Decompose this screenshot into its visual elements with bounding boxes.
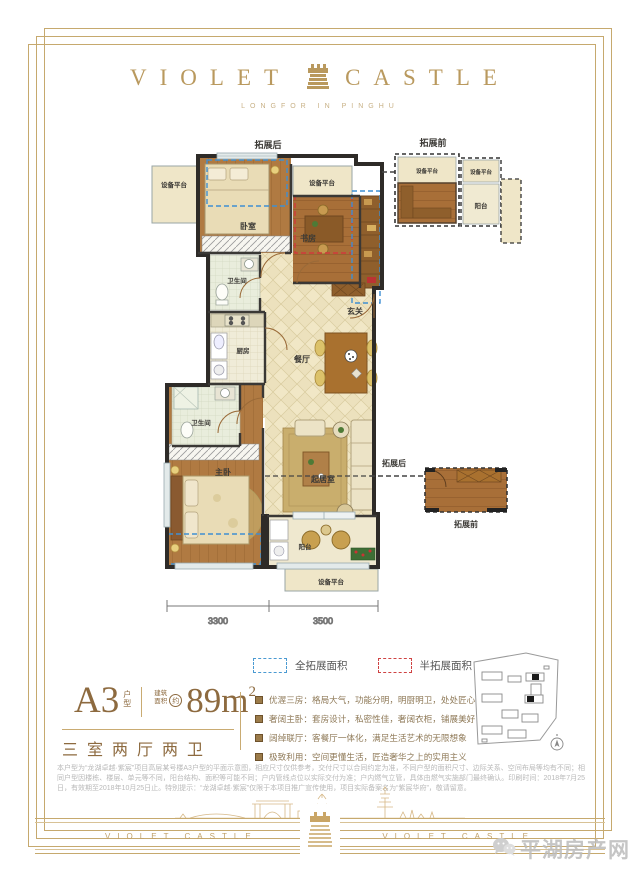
legend-half-swatch bbox=[378, 658, 412, 673]
svg-text:拓展前: 拓展前 bbox=[419, 137, 446, 148]
legend-half-label: 半拓展面积 bbox=[420, 658, 473, 673]
floor-plan: 设备平台 卧室 设备平台 bbox=[145, 128, 535, 640]
armchair bbox=[295, 420, 325, 436]
brand-title-right: CASTLE bbox=[345, 65, 510, 91]
dim-right: 3500 bbox=[313, 616, 333, 626]
room-equipment-mid: 设备平台 bbox=[293, 166, 352, 196]
svg-text:设备平台: 设备平台 bbox=[318, 577, 345, 586]
room-study: 书房 bbox=[293, 196, 360, 283]
svg-text:阳台: 阳台 bbox=[475, 201, 489, 210]
list-item: 优渥三房：格局大气，功能分明，明厨明卫，处处匠心 bbox=[255, 690, 467, 709]
svg-text:设备平台: 设备平台 bbox=[416, 167, 439, 175]
wardrobe bbox=[202, 236, 290, 252]
legend-full-swatch bbox=[253, 658, 287, 673]
svg-text:卧室: 卧室 bbox=[240, 221, 256, 231]
layout-text: 三室两厅两卫 bbox=[62, 736, 238, 760]
dimension-lines: 3300 3500 bbox=[167, 600, 378, 626]
list-item: 奢阔主卧：套房设计，私密性佳，奢阔衣柜，铺展美好 bbox=[255, 709, 467, 728]
svg-text:设备平台: 设备平台 bbox=[470, 168, 493, 176]
area-prefix: 建筑 面积 bbox=[154, 690, 167, 705]
room-balcony: 阳台 bbox=[267, 516, 377, 566]
svg-text:拓展前: 拓展前 bbox=[454, 519, 478, 529]
feature-list: 优渥三房：格局大气，功能分明，明厨明卫，处处匠心 奢阔主卧：套房设计，私密性佳，… bbox=[255, 690, 467, 766]
room-equipment-bottom: 设备平台 bbox=[285, 569, 378, 591]
bullet-icon bbox=[255, 753, 263, 761]
info-divider bbox=[141, 687, 142, 717]
info-vertical-rule bbox=[240, 692, 241, 750]
dining-table bbox=[325, 333, 367, 393]
wechat-icon bbox=[492, 836, 516, 863]
room-kitchen: 厨房 bbox=[210, 313, 265, 383]
brand-subtitle: LONGFOR IN PINGHU bbox=[0, 103, 640, 110]
svg-text:阳台: 阳台 bbox=[299, 542, 313, 551]
list-item: 阔绰联厅：客餐厅一体化，满足生活艺术的无限想象 bbox=[255, 728, 467, 747]
room-bath2: 卫生间 bbox=[172, 385, 240, 446]
brand-title-left: VIOLET bbox=[130, 65, 291, 91]
highlighted-building bbox=[527, 696, 534, 702]
svg-text:拓展后: 拓展后 bbox=[382, 458, 406, 468]
approx-badge: 约 bbox=[169, 694, 182, 707]
svg-text:厨房: 厨房 bbox=[237, 346, 251, 355]
watermark-text: 平湖房产网 bbox=[520, 834, 630, 864]
expand-after-top-label: 拓展后 bbox=[254, 139, 281, 150]
svg-text:设备平台: 设备平台 bbox=[161, 180, 188, 189]
footer-brand-left: VIOLET CASTLE bbox=[105, 832, 258, 841]
svg-text:设备平台: 设备平台 bbox=[309, 178, 336, 187]
svg-text:主卧: 主卧 bbox=[215, 467, 231, 477]
legend: 全拓展面积 半拓展面积 bbox=[253, 658, 472, 673]
svg-text:餐厅: 餐厅 bbox=[293, 354, 310, 364]
inset-small-room: 拓展后 拓展前 bbox=[370, 458, 507, 529]
info-rule bbox=[62, 729, 234, 730]
bullet-icon bbox=[255, 734, 263, 742]
header: VIOLET CASTLE LONGFOR IN PINGHU bbox=[0, 60, 640, 110]
site-map bbox=[468, 648, 568, 758]
svg-text:书房: 书房 bbox=[300, 233, 316, 243]
north-arrow-icon bbox=[551, 734, 563, 750]
room-equipment-topleft: 设备平台 bbox=[152, 166, 197, 223]
sofa bbox=[351, 420, 375, 510]
corridor-floor bbox=[260, 253, 295, 283]
room-bath1: 卫生间 bbox=[210, 255, 260, 310]
balcony-chair bbox=[332, 531, 350, 549]
svg-text:玄关: 玄关 bbox=[347, 306, 363, 316]
inset-before-expansion-top: 拓展前 设备平台 设备平台 阳台 bbox=[395, 137, 521, 243]
unit-code: A3 bbox=[74, 684, 119, 718]
castle-icon bbox=[305, 60, 331, 95]
unit-type: 户 型 bbox=[123, 690, 131, 708]
poster-page: VIOLET CASTLE LONGFOR IN PINGHU bbox=[0, 0, 640, 875]
watermark: 平湖房产网 bbox=[492, 834, 630, 864]
svg-text:卫生间: 卫生间 bbox=[227, 276, 247, 285]
room-living: 起居室 bbox=[265, 418, 375, 520]
bullet-icon bbox=[255, 696, 263, 704]
highlighted-building bbox=[532, 674, 539, 680]
legend-full-label: 全拓展面积 bbox=[295, 658, 348, 673]
unit-info: A3 户 型 建筑 面积 约 89m 2 bbox=[74, 684, 256, 718]
svg-text:卫生间: 卫生间 bbox=[191, 418, 211, 427]
dim-left: 3300 bbox=[208, 616, 228, 626]
room-bedroom: 卧室 bbox=[200, 158, 291, 253]
bullet-icon bbox=[255, 715, 263, 723]
castle-emblem-icon bbox=[300, 804, 340, 854]
